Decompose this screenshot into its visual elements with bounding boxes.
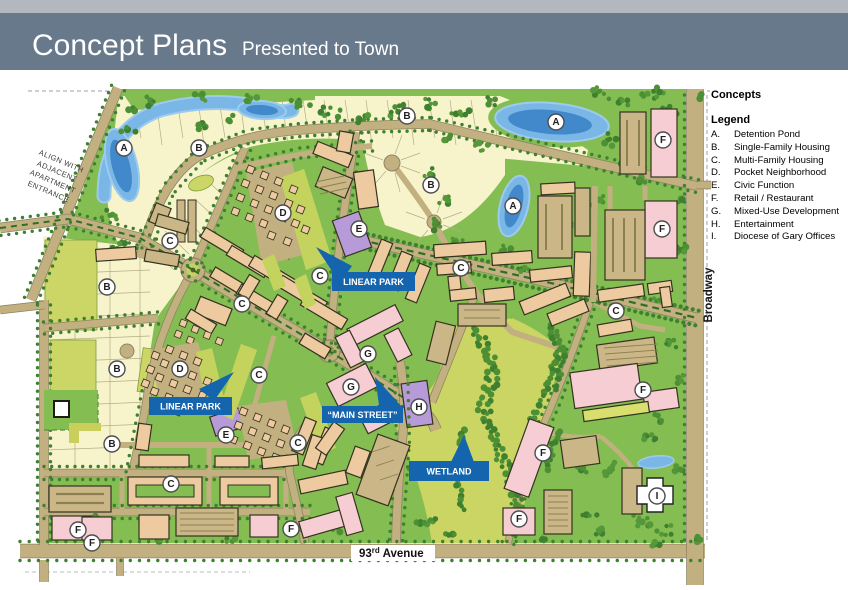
svg-text:B: B [403, 111, 410, 122]
svg-text:E: E [356, 224, 363, 235]
svg-text:B: B [113, 364, 120, 375]
svg-text:F: F [75, 525, 81, 536]
svg-text:Broadway: Broadway [703, 267, 715, 323]
svg-text:F: F [288, 524, 294, 535]
svg-text:A: A [120, 143, 127, 154]
svg-text:C: C [167, 479, 174, 490]
svg-text:F: F [516, 514, 522, 525]
svg-text:C: C [294, 438, 301, 449]
svg-text:C: C [316, 271, 323, 282]
svg-text:“MAIN STREET”: “MAIN STREET” [327, 410, 397, 420]
svg-text:G: G [364, 349, 372, 360]
svg-text:B: B [195, 143, 202, 154]
svg-text:A: A [552, 117, 559, 128]
svg-text:E: E [223, 430, 230, 441]
svg-text:C: C [612, 306, 619, 317]
svg-text:F: F [89, 538, 95, 549]
svg-text:F: F [640, 385, 646, 396]
svg-text:LINEAR PARK: LINEAR PARK [343, 277, 404, 287]
svg-text:F: F [659, 224, 665, 235]
svg-text:C: C [238, 299, 245, 310]
svg-text:D: D [279, 208, 286, 219]
svg-text:C: C [166, 236, 173, 247]
svg-text:B: B [108, 439, 115, 450]
svg-text:F: F [540, 448, 546, 459]
svg-text:C: C [457, 263, 464, 274]
svg-text:WETLAND: WETLAND [427, 466, 472, 476]
svg-text:93rd Avenue: 93rd Avenue [359, 546, 424, 561]
svg-text:I: I [656, 491, 659, 502]
svg-text:B: B [103, 282, 110, 293]
svg-text:B: B [427, 180, 434, 191]
svg-text:LINEAR PARK: LINEAR PARK [160, 401, 221, 411]
svg-text:D: D [176, 364, 183, 375]
svg-text:A: A [509, 201, 516, 212]
svg-text:C: C [255, 370, 262, 381]
svg-text:H: H [415, 402, 422, 413]
svg-text:G: G [347, 382, 355, 393]
svg-text:F: F [660, 135, 666, 146]
